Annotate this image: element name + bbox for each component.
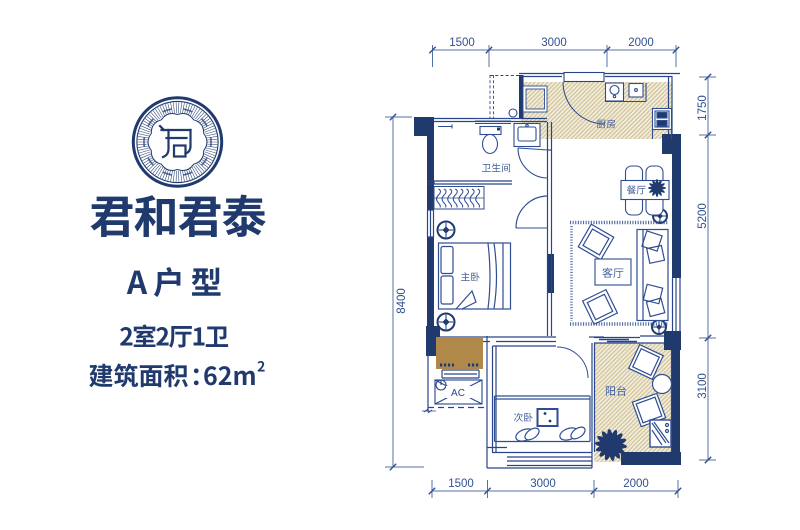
svg-text:5200: 5200 [697,203,709,229]
svg-text:3100: 3100 [697,373,709,399]
svg-text:1500: 1500 [449,37,475,49]
svg-text:8400: 8400 [396,288,408,314]
svg-text:1750: 1750 [697,95,709,121]
svg-text:2000: 2000 [628,37,654,49]
svg-text:3000: 3000 [530,478,556,490]
svg-text:1500: 1500 [448,478,474,490]
svg-text:2000: 2000 [623,478,649,490]
svg-text:3000: 3000 [541,37,567,49]
svg-text:AC: AC [451,388,465,399]
